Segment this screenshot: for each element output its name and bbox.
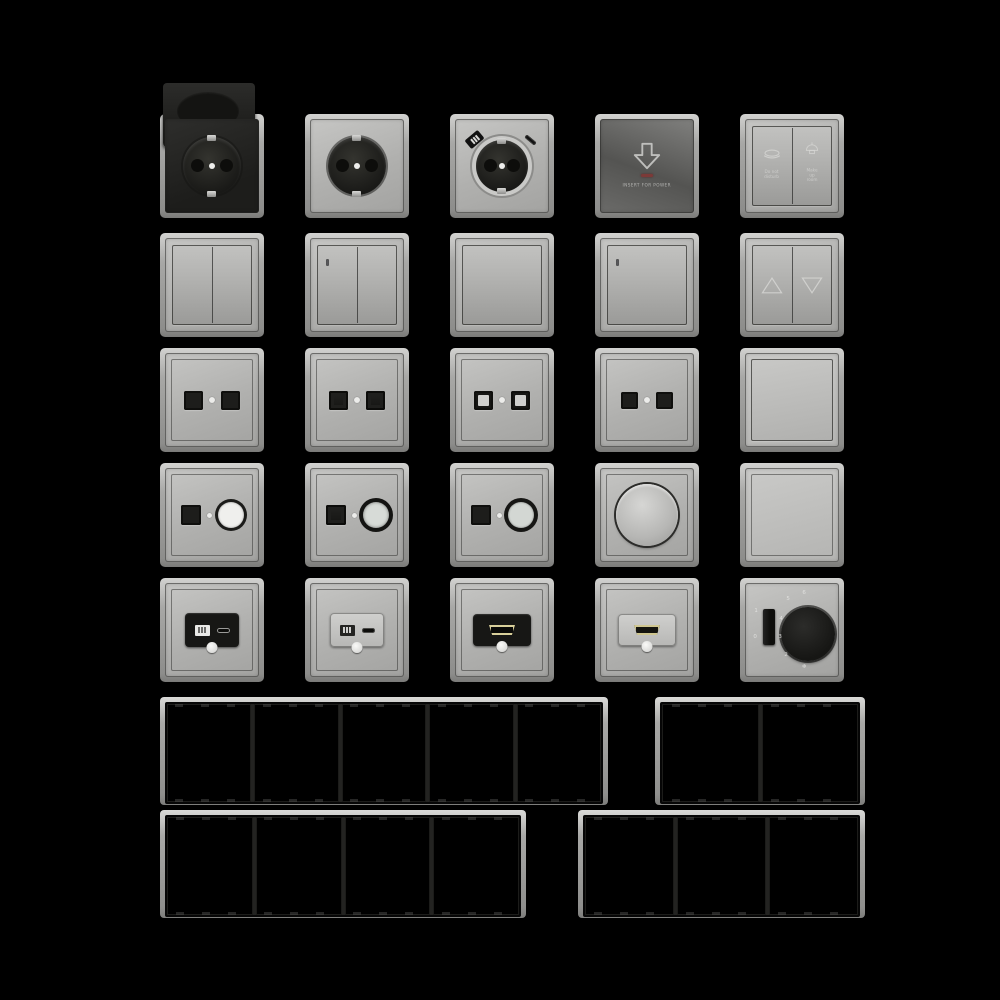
usb-charger-black[interactable] [160, 578, 264, 682]
frame-opening [251, 704, 338, 802]
usb-a-port-icon[interactable] [464, 130, 484, 149]
hotel-left-label-1: Do not [765, 169, 780, 174]
triangle-up-icon [758, 272, 786, 298]
coax-connector-icon[interactable] [218, 502, 244, 528]
socket-hole [365, 159, 378, 172]
frame-opening [430, 817, 519, 915]
dial-mark: 4 [779, 615, 783, 621]
center-screw [499, 163, 505, 169]
frame-3gang[interactable] [578, 810, 865, 918]
hdmi-port-icon[interactable] [489, 625, 515, 635]
thermostat-switch[interactable] [763, 609, 775, 645]
do-not-disturb-icon [760, 147, 784, 161]
screw-dot [644, 397, 650, 403]
usb-a-port-icon[interactable] [340, 625, 355, 636]
dial-mark: 6 [802, 589, 806, 595]
earth-clip [352, 191, 361, 197]
socket-hole [336, 159, 349, 172]
socket-hole [484, 159, 497, 172]
frame-4gang[interactable] [160, 810, 526, 918]
usb-c-port-icon[interactable] [524, 134, 537, 145]
usb-insert [330, 613, 384, 647]
frame-opening [662, 704, 759, 802]
data-socket-2port-light[interactable] [450, 348, 554, 452]
hdmi-socket-gray[interactable] [595, 578, 699, 682]
hdmi-port-icon[interactable] [634, 625, 660, 635]
data-socket-2port-small[interactable] [595, 348, 699, 452]
screw-dot [354, 397, 360, 403]
socket-hole [220, 159, 233, 172]
hotel-right-label-1: Make up [804, 168, 821, 178]
switch-2gang-led[interactable] [305, 233, 409, 337]
indicator-led [616, 259, 619, 266]
coax-connector-icon[interactable] [363, 502, 389, 528]
usb-c-port-icon[interactable] [362, 628, 375, 633]
schuko-outlet-icon [476, 140, 528, 192]
center-screw [209, 163, 215, 169]
thermostat[interactable]: 1 0 6 5 4 3 2 ❄ [740, 578, 844, 682]
media-socket-coax[interactable] [160, 463, 264, 567]
usb-c-port-icon[interactable] [217, 628, 230, 633]
center-screw [354, 163, 360, 169]
frame-opening [253, 817, 342, 915]
rj45-port-icon[interactable] [366, 391, 385, 410]
socket-hole [191, 159, 204, 172]
data-port-icon[interactable] [326, 505, 346, 525]
hotel-rocker[interactable]: Do not disturb Make up room [752, 126, 832, 206]
blank-cover-plate[interactable] [740, 463, 844, 567]
hotel-right-label-2: room [804, 177, 821, 182]
frame-opening [759, 704, 859, 802]
frame-5gang[interactable] [160, 697, 608, 805]
usb-charger-gray[interactable] [305, 578, 409, 682]
frame-opening [514, 704, 601, 802]
frame-opening [585, 817, 674, 915]
earth-clip [352, 135, 361, 141]
socket-hole [507, 159, 520, 172]
product-sheet: INSERT FOR POWER Do not disturb [0, 0, 1000, 1000]
rj45-port-icon[interactable] [621, 392, 638, 409]
socket-schuko[interactable] [305, 114, 409, 218]
switch-1gang-led[interactable] [595, 233, 699, 337]
screw-dot [499, 397, 505, 403]
usb-a-port-icon[interactable] [195, 625, 210, 636]
frame-opening [339, 704, 426, 802]
hdmi-insert [473, 614, 531, 646]
slider-mark-off: 0 [753, 633, 757, 639]
data-port-icon[interactable] [181, 505, 201, 525]
snowflake-icon: ❄ [802, 663, 807, 669]
hdmi-socket-black[interactable] [450, 578, 554, 682]
shutter-rocker[interactable] [752, 245, 832, 325]
frame-opening [766, 817, 858, 915]
screw-dot [642, 641, 653, 652]
rj45-port-icon[interactable] [329, 391, 348, 410]
triangle-down-icon [798, 272, 826, 298]
usb-insert [185, 613, 239, 647]
rocker-2gang[interactable] [172, 245, 252, 325]
keycard-power-switch[interactable]: INSERT FOR POWER [595, 114, 699, 218]
hotel-left-label-2: disturb [765, 174, 780, 179]
earth-clip [207, 191, 216, 197]
data-socket-2port[interactable] [160, 348, 264, 452]
hdmi-insert [618, 614, 676, 646]
socket-schuko-usb[interactable] [450, 114, 554, 218]
make-up-room-icon [802, 140, 822, 156]
rj45-port-icon[interactable] [221, 391, 240, 410]
dimmer-knob[interactable] [616, 484, 678, 546]
button-face[interactable] [751, 359, 833, 441]
hotel-service-switch[interactable]: Do not disturb Make up room [740, 114, 844, 218]
media-socket-coax-soft[interactable] [450, 463, 554, 567]
card-switch-label: INSERT FOR POWER [623, 183, 671, 188]
screw-dot [207, 513, 212, 518]
frame-opening [674, 817, 766, 915]
dial-mark: 2 [784, 651, 788, 657]
coax-connector-icon[interactable] [508, 502, 534, 528]
screw-dot [207, 642, 218, 653]
frame-opening [167, 817, 253, 915]
rj45-port-icon[interactable] [184, 391, 203, 410]
shutter-switch[interactable] [740, 233, 844, 337]
power-led [641, 174, 653, 177]
socket-with-lid[interactable] [160, 114, 264, 218]
frame-2gang[interactable] [655, 697, 865, 805]
data-port-icon[interactable] [471, 505, 491, 525]
frame-opening [167, 704, 251, 802]
screw-dot [497, 513, 502, 518]
rocker-1gang[interactable] [462, 245, 542, 325]
slider-mark-on: 1 [754, 607, 758, 613]
switch-1gang[interactable] [450, 233, 554, 337]
dial-mark: 3 [778, 633, 782, 639]
schuko-outlet-icon [328, 137, 386, 195]
rj45-port-icon[interactable] [656, 392, 673, 409]
screw-dot [497, 641, 508, 652]
fiber-port-icon[interactable] [474, 391, 493, 410]
rotary-dimmer[interactable] [595, 463, 699, 567]
indicator-led [326, 259, 329, 266]
earth-clip [497, 188, 506, 194]
dial-mark: 5 [786, 595, 790, 601]
switch-2gang[interactable] [160, 233, 264, 337]
rocker-1gang[interactable] [607, 245, 687, 325]
earth-clip [207, 135, 216, 141]
earth-clip [497, 138, 506, 144]
screw-dot [209, 397, 215, 403]
data-socket-2port-jack[interactable] [305, 348, 409, 452]
frame-opening [342, 817, 431, 915]
media-socket-coax-jack[interactable] [305, 463, 409, 567]
screw-dot [352, 513, 357, 518]
screw-dot [352, 642, 363, 653]
thermostat-knob[interactable] [781, 607, 835, 661]
frame-opening [426, 704, 513, 802]
fiber-port-icon[interactable] [511, 391, 530, 410]
rocker-2gang[interactable] [317, 245, 397, 325]
arrow-down-icon [629, 141, 665, 171]
push-button-blank[interactable] [740, 348, 844, 452]
schuko-outlet-icon [183, 137, 241, 195]
